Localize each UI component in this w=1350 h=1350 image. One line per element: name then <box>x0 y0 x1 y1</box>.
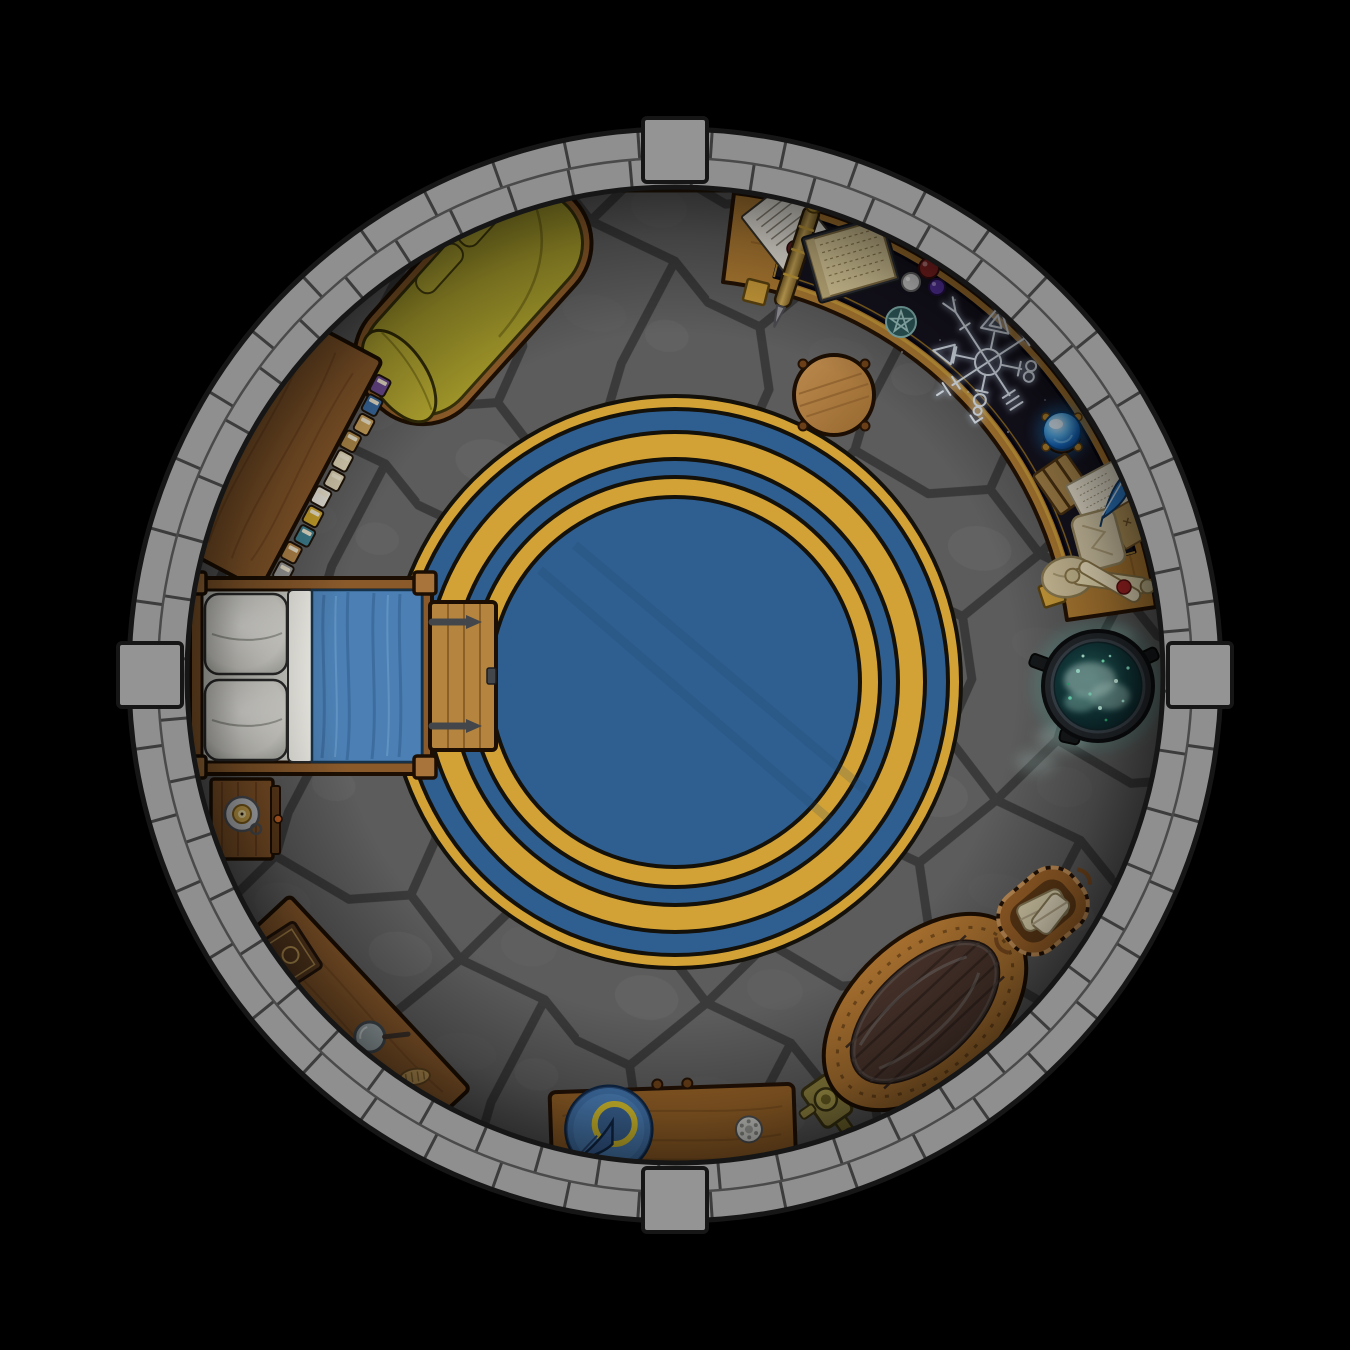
floor-vignette <box>188 188 1162 1162</box>
buttress-north <box>643 118 707 182</box>
buttress-west <box>118 643 182 707</box>
tower-map-canvas <box>0 0 1350 1350</box>
buttress-south <box>643 1168 707 1232</box>
buttress-east <box>1168 643 1232 707</box>
battle-map <box>0 0 1350 1350</box>
